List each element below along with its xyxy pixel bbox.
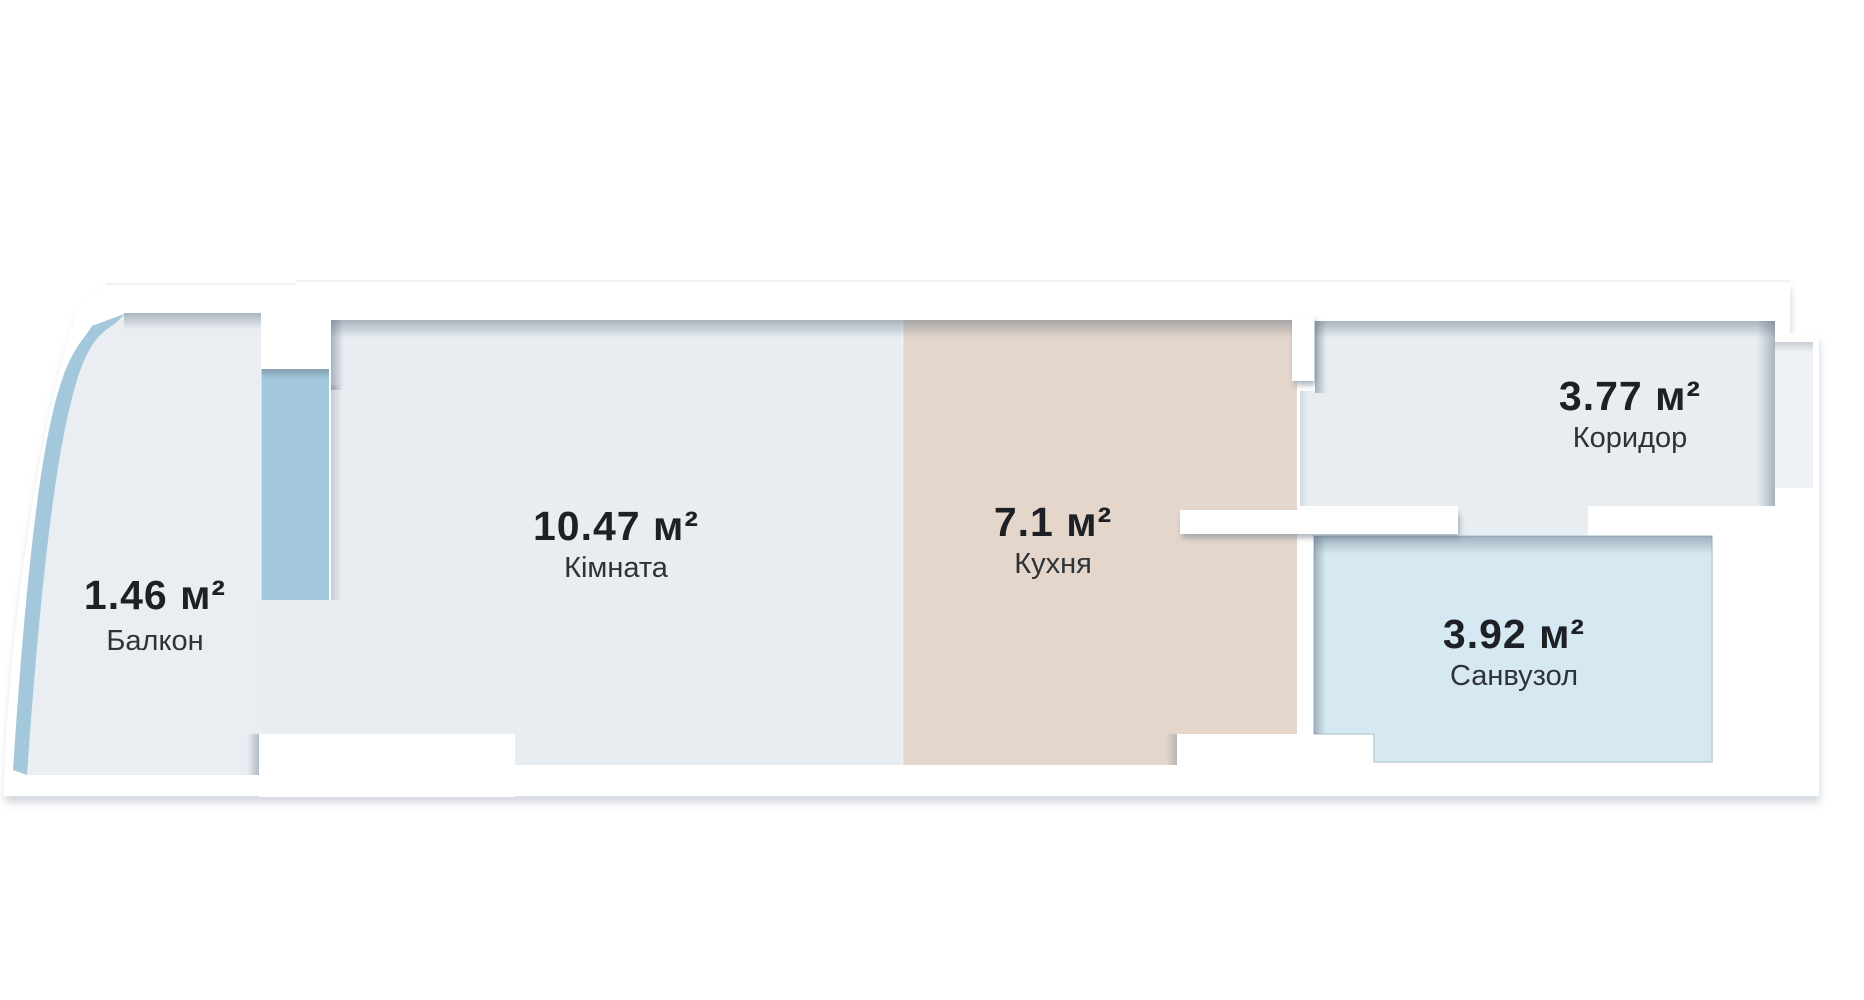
svg-text:Кімната: Кімната bbox=[564, 552, 669, 584]
svg-text:Балкон: Балкон bbox=[106, 625, 203, 657]
svg-text:Санвузол: Санвузол bbox=[1450, 660, 1578, 692]
svg-text:3.92 м²: 3.92 м² bbox=[1443, 611, 1585, 657]
svg-text:7.1 м²: 7.1 м² bbox=[994, 499, 1112, 545]
svg-text:1.46 м²: 1.46 м² bbox=[84, 572, 226, 618]
svg-text:Коридор: Коридор bbox=[1573, 422, 1688, 454]
svg-text:10.47 м²: 10.47 м² bbox=[533, 503, 699, 549]
svg-text:Кухня: Кухня bbox=[1014, 548, 1092, 580]
svg-text:3.77 м²: 3.77 м² bbox=[1559, 373, 1701, 419]
